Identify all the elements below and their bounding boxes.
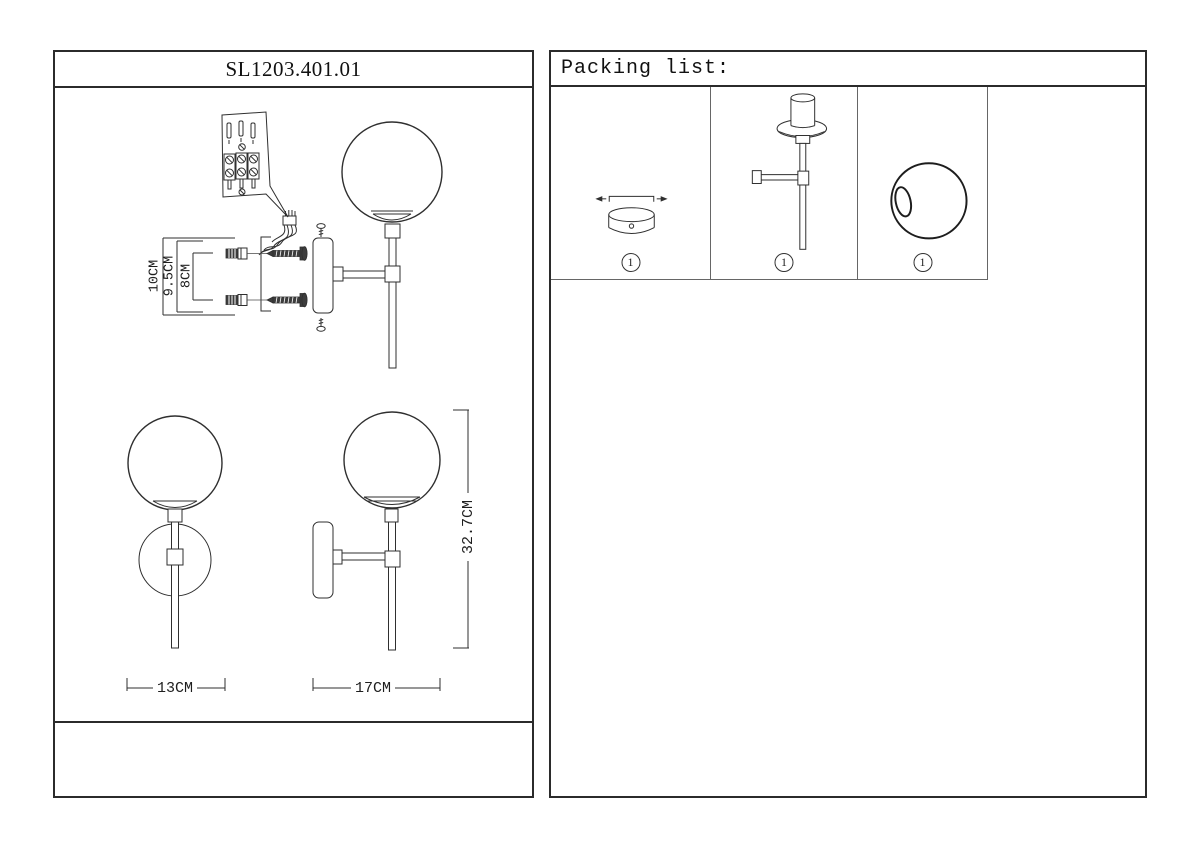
lamp-technical-drawing: 10CM 9.5CM 8CM	[55, 90, 531, 719]
canopy-qty: 1	[628, 255, 634, 270]
wall-anchor-screw-bottom-icon	[226, 293, 307, 307]
terminal-block-detail-icon	[222, 112, 288, 217]
packing-item-lamp-body: 1	[711, 87, 858, 279]
model-title: SL1203.401.01	[225, 57, 361, 82]
dim-13cm-label: 13CM	[157, 680, 193, 697]
mounting-dimensions: 10CM 9.5CM 8CM	[148, 238, 235, 315]
packing-items-row: 1 1	[551, 87, 988, 280]
model-title-row: SL1203.401.01	[55, 52, 532, 88]
wire-connector-icon	[259, 210, 296, 255]
sconce-assembly-side-icon	[313, 122, 442, 368]
globe-icon	[858, 87, 987, 279]
lamp-body-qty: 1	[781, 255, 787, 270]
installation-diagram: 10CM 9.5CM 8CM	[148, 112, 442, 368]
dim-10cm-label: 10CM	[148, 260, 163, 292]
packing-list-header: Packing list:	[551, 52, 1145, 87]
lamp-body-qty-badge: 1	[775, 253, 794, 272]
dim-17cm: 17CM	[313, 678, 440, 697]
drawing-sheet-panel: SL1203.401.01	[53, 50, 534, 798]
wall-anchor-screw-top-icon	[226, 247, 307, 261]
canopy-qty-badge: 1	[621, 253, 640, 272]
dim-13cm: 13CM	[127, 678, 225, 697]
sheet-footer-divider	[55, 721, 532, 723]
globe-qty-badge: 1	[913, 253, 932, 272]
dim-32-7cm: 32.7CM	[453, 410, 477, 648]
front-view-diagram: 13CM	[127, 416, 225, 697]
dim-9-5cm-label: 9.5CM	[163, 256, 178, 297]
dim-17cm-label: 17CM	[355, 680, 391, 697]
globe-qty: 1	[920, 255, 926, 270]
dim-8cm-label: 8CM	[180, 264, 195, 288]
packing-item-canopy: 1	[551, 87, 711, 279]
packing-list-title: Packing list:	[561, 57, 730, 80]
packing-item-globe: 1	[858, 87, 988, 279]
lamp-body-icon	[711, 87, 857, 279]
canopy-icon	[551, 87, 711, 279]
side-view-diagram: 17CM 32.7CM	[313, 410, 477, 697]
packing-list-panel: Packing list: 1	[549, 50, 1147, 798]
dim-32-7cm-label: 32.7CM	[460, 500, 477, 554]
